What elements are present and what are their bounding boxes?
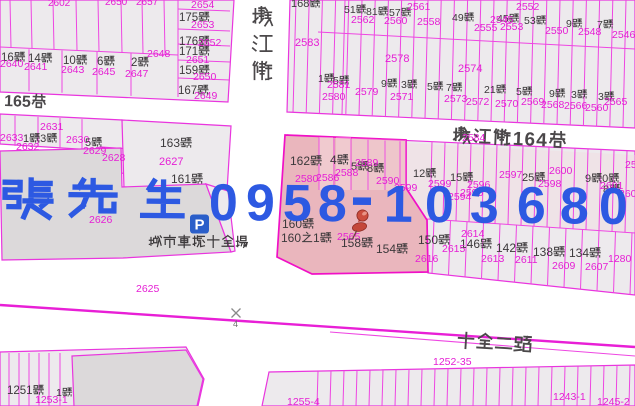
- svg-text:2560: 2560: [384, 15, 408, 27]
- svg-text:2570: 2570: [495, 98, 519, 110]
- svg-text:2550: 2550: [545, 25, 569, 37]
- svg-text:150: 150: [418, 233, 438, 247]
- svg-text:49: 49: [452, 12, 464, 24]
- svg-text:1243-1: 1243-1: [553, 391, 586, 403]
- svg-text:2613: 2613: [481, 253, 505, 265]
- svg-text:1: 1: [23, 133, 29, 145]
- svg-text:2548: 2548: [578, 26, 602, 38]
- svg-text:2583: 2583: [295, 37, 319, 49]
- svg-text:2578: 2578: [385, 53, 409, 65]
- svg-text:2649: 2649: [194, 90, 218, 102]
- svg-text:2615: 2615: [442, 243, 466, 255]
- svg-text:160: 160: [281, 231, 301, 245]
- svg-text:21: 21: [484, 84, 496, 96]
- svg-text:2627: 2627: [159, 156, 183, 168]
- svg-text:4: 4: [330, 153, 337, 167]
- svg-text:164: 164: [512, 129, 548, 152]
- svg-text:165: 165: [4, 93, 31, 111]
- svg-text:1253-1: 1253-1: [35, 394, 68, 406]
- svg-text:2560: 2560: [585, 102, 609, 114]
- svg-text:2572: 2572: [466, 96, 490, 108]
- svg-text:P: P: [194, 217, 204, 234]
- svg-text:2654: 2654: [191, 0, 215, 11]
- svg-text:2561: 2561: [407, 1, 431, 13]
- svg-text:53: 53: [524, 15, 536, 27]
- svg-text:2653: 2653: [191, 19, 215, 31]
- svg-text:2611: 2611: [515, 254, 538, 266]
- svg-text:1255-4: 1255-4: [287, 396, 320, 406]
- svg-text:168: 168: [291, 0, 309, 10]
- svg-text:2609: 2609: [552, 260, 576, 272]
- svg-text:1245-2: 1245-2: [597, 396, 630, 406]
- svg-text:2566: 2566: [564, 100, 588, 112]
- svg-text:154: 154: [376, 242, 396, 256]
- svg-text:2580: 2580: [322, 91, 346, 103]
- svg-text:1251: 1251: [7, 385, 33, 397]
- svg-text:134: 134: [569, 246, 589, 260]
- svg-text:158: 158: [341, 236, 361, 250]
- svg-text:2628: 2628: [102, 152, 126, 164]
- svg-text:1252-35: 1252-35: [433, 356, 472, 368]
- svg-text:3: 3: [401, 79, 407, 91]
- svg-text:2589: 2589: [355, 157, 379, 169]
- svg-text:2616: 2616: [415, 253, 439, 265]
- svg-text:2631: 2631: [40, 121, 64, 133]
- svg-text:1: 1: [318, 73, 324, 85]
- svg-text:12: 12: [413, 168, 425, 180]
- svg-text:2607: 2607: [585, 261, 609, 273]
- svg-text:2573: 2573: [444, 93, 468, 105]
- svg-text:2648: 2648: [147, 48, 171, 60]
- svg-text:2643: 2643: [61, 64, 85, 76]
- svg-text:2571: 2571: [390, 91, 414, 103]
- svg-text:2641: 2641: [24, 61, 48, 73]
- svg-text:2546: 2546: [612, 29, 635, 41]
- svg-text:161: 161: [171, 172, 191, 186]
- svg-text:162: 162: [290, 154, 310, 168]
- svg-text:2652: 2652: [198, 37, 222, 49]
- svg-text:2553: 2553: [500, 21, 524, 33]
- svg-text:9: 9: [381, 78, 387, 90]
- svg-text:2645: 2645: [92, 66, 116, 78]
- svg-text:4: 4: [233, 319, 238, 329]
- svg-text:2579: 2579: [355, 86, 379, 98]
- svg-text:2562: 2562: [351, 14, 375, 26]
- svg-text:2584: 2584: [462, 132, 486, 144]
- svg-text:2568: 2568: [541, 99, 565, 111]
- svg-text:2657: 2657: [136, 0, 159, 8]
- svg-text:2640: 2640: [0, 58, 24, 70]
- svg-text:5: 5: [85, 137, 91, 149]
- svg-text:25: 25: [625, 159, 635, 171]
- svg-text:2558: 2558: [417, 16, 441, 28]
- svg-text:2647: 2647: [125, 68, 149, 80]
- svg-text:2602: 2602: [48, 0, 71, 9]
- svg-text:2552: 2552: [516, 1, 540, 13]
- svg-text:5: 5: [427, 81, 433, 93]
- svg-text:2581: 2581: [327, 79, 351, 91]
- svg-text:2625: 2625: [136, 283, 160, 295]
- svg-text:1280: 1280: [608, 253, 632, 265]
- svg-text:2574: 2574: [458, 63, 482, 75]
- svg-text:2600: 2600: [549, 165, 573, 177]
- svg-text:2650: 2650: [105, 0, 128, 8]
- svg-text:3: 3: [40, 133, 46, 145]
- svg-text:163: 163: [160, 136, 180, 150]
- svg-text:2650: 2650: [193, 71, 217, 83]
- svg-text:1: 1: [56, 387, 62, 399]
- svg-text:2626: 2626: [89, 214, 113, 226]
- svg-text:1: 1: [313, 231, 320, 245]
